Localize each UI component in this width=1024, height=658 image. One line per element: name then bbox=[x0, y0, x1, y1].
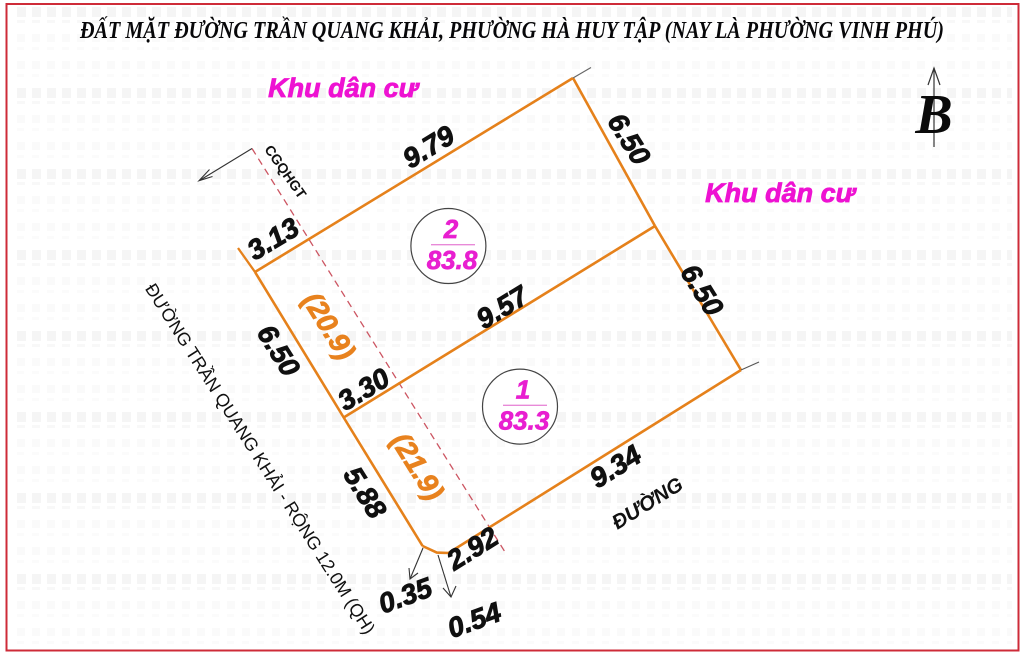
svg-text:1: 1 bbox=[516, 375, 530, 405]
svg-text:83.3: 83.3 bbox=[499, 406, 550, 436]
svg-text:Khu dân cư: Khu dân cư bbox=[705, 178, 858, 208]
svg-text:Khu dân cư: Khu dân cư bbox=[268, 73, 421, 103]
svg-text:2: 2 bbox=[443, 214, 459, 244]
svg-text:B: B bbox=[914, 84, 952, 146]
svg-text:83.8: 83.8 bbox=[427, 245, 478, 275]
svg-text:ĐẤT MẶT ĐƯỜNG TRẦN QUANG KHẢI,: ĐẤT MẶT ĐƯỜNG TRẦN QUANG KHẢI, PHƯỜNG HÀ… bbox=[79, 17, 944, 44]
